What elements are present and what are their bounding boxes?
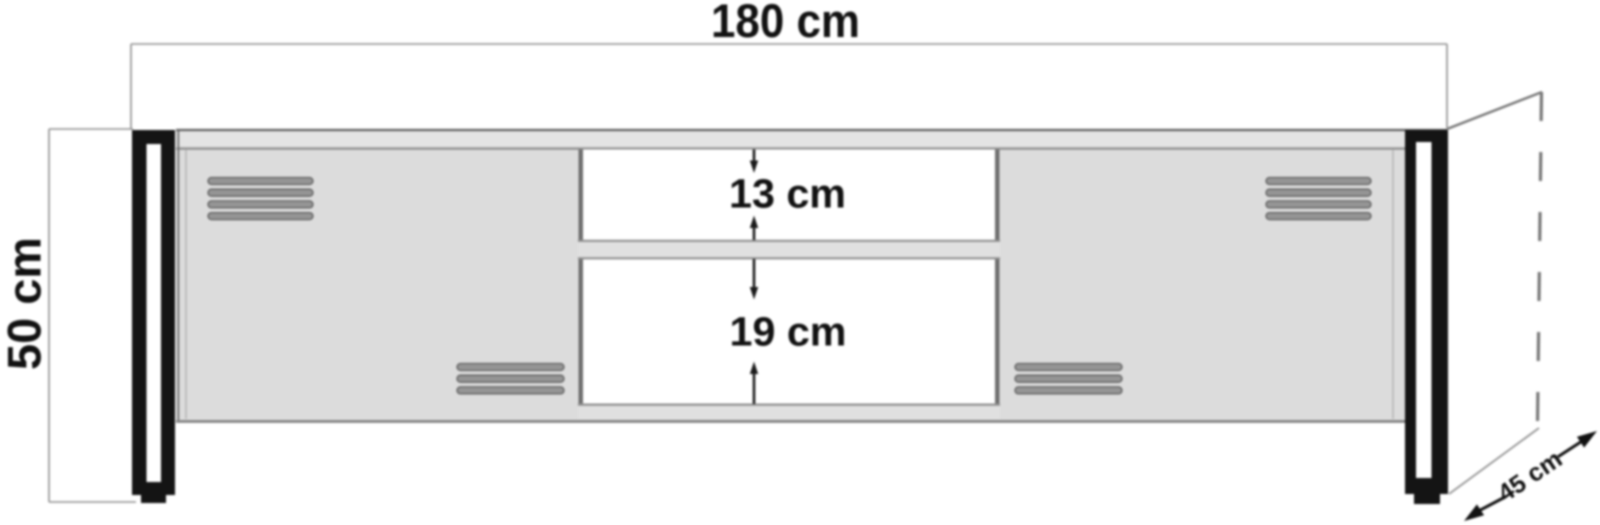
svg-text:180 cm: 180 cm	[711, 0, 860, 47]
svg-text:13 cm: 13 cm	[729, 170, 846, 216]
svg-text:50 cm: 50 cm	[0, 237, 51, 370]
svg-text:19 cm: 19 cm	[730, 308, 847, 354]
